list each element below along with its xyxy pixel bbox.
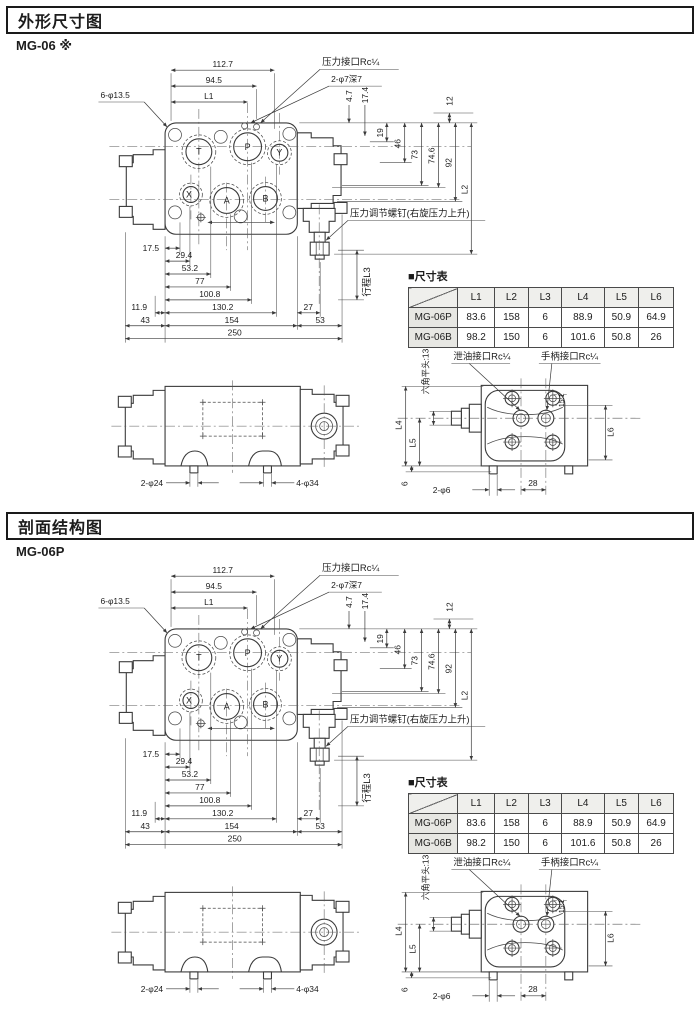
- section-header: 剖面结构图: [6, 512, 694, 540]
- dimension-table: ■尺寸表 L1 L2 L3 L4 L5 L6 MG-06P 83.6 158 6…: [408, 774, 674, 854]
- dim-154: 154: [225, 821, 239, 831]
- table-corner-cell: [409, 288, 458, 308]
- dim-2-d6: 2-φ6: [433, 991, 451, 1001]
- section-outline-dimensions: 外形尺寸图 MG-06 ※ T P Y X A B 112.7 94: [4, 6, 696, 506]
- col-L4: L4: [562, 288, 604, 308]
- dim-100-8: 100.8: [199, 289, 220, 299]
- cell: 158: [494, 814, 528, 834]
- label-pressure-port: 压力接口Rc¼: [322, 56, 379, 68]
- col-L3: L3: [529, 288, 562, 308]
- cell: 83.6: [458, 814, 494, 834]
- dim-6: 6: [400, 481, 410, 486]
- dim-stroke-L3: 行程L3: [361, 267, 373, 296]
- cell: 6: [529, 834, 562, 854]
- dim-L1: L1: [204, 597, 214, 607]
- cell: 50.9: [604, 814, 639, 834]
- dim-6: 6: [400, 987, 410, 992]
- cell: 150: [494, 834, 528, 854]
- dim-29-4: 29.4: [176, 250, 193, 260]
- section-header: 外形尺寸图: [6, 6, 694, 34]
- label-handle-port: 手柄接口Rc¼: [541, 351, 598, 363]
- cell: 101.6: [562, 328, 604, 348]
- col-L4: L4: [562, 794, 604, 814]
- label-adjust-screw: 压力调节螺钉(右旋压力上升): [350, 207, 470, 219]
- col-L6: L6: [639, 288, 674, 308]
- dim-stroke-L3: 行程L3: [361, 773, 373, 802]
- dim-28: 28: [528, 478, 538, 488]
- port-Y: Y: [276, 148, 282, 158]
- dim-53-2: 53.2: [182, 769, 199, 779]
- table-row: MG-06B 98.2 150 6 101.6 50.8 26: [409, 328, 674, 348]
- port-A: A: [224, 701, 230, 711]
- dim-12: 12: [444, 602, 454, 612]
- dim-43: 43: [140, 821, 150, 831]
- dim-19: 19: [375, 634, 385, 644]
- col-L2: L2: [494, 288, 528, 308]
- drawing-area-section: T P Y X A B 112.7 94.5 L1 6-φ13.5 压力接口Rc…: [4, 560, 696, 1012]
- dim-130-2: 130.2: [212, 302, 233, 312]
- table-row: MG-06B 98.2 150 6 101.6 50.8 26: [409, 834, 674, 854]
- port-T: T: [196, 147, 202, 157]
- port-B: B: [263, 193, 269, 203]
- dim-100-8: 100.8: [199, 795, 220, 805]
- dim-L5: L5: [408, 438, 418, 448]
- col-L2: L2: [494, 794, 528, 814]
- dim-19: 19: [375, 128, 385, 138]
- row-model: MG-06P: [409, 308, 458, 328]
- dim-43: 43: [140, 315, 150, 325]
- dim-112-7: 112.7: [212, 59, 233, 69]
- dim-L6: L6: [605, 933, 615, 943]
- dim-4-d34: 4-φ34: [296, 984, 319, 994]
- dim-28: 28: [528, 984, 538, 994]
- table-header-row: L1 L2 L3 L4 L5 L6: [409, 794, 674, 814]
- section-cross-section: 剖面结构图 MG-06P T P Y X A B 112.7 94.: [4, 512, 696, 1012]
- section-title: 剖面结构图: [18, 514, 103, 538]
- dim-4-d34: 4-φ34: [296, 478, 319, 488]
- cell: 64.9: [639, 814, 674, 834]
- port-X: X: [186, 189, 192, 199]
- table-header-row: L1 L2 L3 L4 L5 L6: [409, 288, 674, 308]
- dim-73: 73: [410, 656, 420, 666]
- dim-27: 27: [304, 302, 314, 312]
- dim-L6: L6: [605, 427, 615, 437]
- port-B: B: [263, 699, 269, 709]
- col-L3: L3: [529, 794, 562, 814]
- cell: 50.9: [604, 308, 639, 328]
- dim-46: 46: [393, 645, 403, 655]
- dim-L5: L5: [408, 944, 418, 954]
- dim-130-2: 130.2: [212, 808, 233, 818]
- model-code: MG-06P: [16, 544, 696, 560]
- side-view: 2-φ24 4-φ34: [111, 886, 360, 993]
- port-T: T: [196, 653, 202, 663]
- cell: 26: [639, 834, 674, 854]
- dim-11-9: 11.9: [131, 808, 147, 818]
- cell: 26: [639, 328, 674, 348]
- label-drain-port: 泄油接口Rc¼: [453, 857, 510, 869]
- dim-4-7: 4.7: [344, 596, 354, 608]
- cell: 98.2: [458, 328, 494, 348]
- drawing-area-outline: T P Y X A B 112.7 94.5 L1 6-φ13.5 压力接口Rc…: [4, 54, 696, 506]
- dim-L2: L2: [459, 691, 469, 701]
- dim-2-d24: 2-φ24: [141, 478, 164, 488]
- cell: 64.9: [639, 308, 674, 328]
- dim-112-7: 112.7: [212, 565, 233, 575]
- dim-94-5: 94.5: [206, 581, 223, 591]
- port-P: P: [245, 648, 251, 658]
- catalog-page: 外形尺寸图 MG-06 ※ T P Y X A B 112.7 94: [0, 0, 700, 1012]
- dim-17-5: 17.5: [143, 243, 160, 253]
- cell: 83.6: [458, 308, 494, 328]
- dim-L4: L4: [394, 926, 404, 936]
- section-title: 外形尺寸图: [18, 8, 103, 32]
- port-A: A: [224, 195, 230, 205]
- dim-53: 53: [315, 315, 325, 325]
- end-view: 泄油接口Rc¼ 手柄接口Rc¼ 六角平头:13 L4 L5 6 L6 15.1 …: [394, 854, 641, 1001]
- col-L6: L6: [639, 794, 674, 814]
- dim-2-d6: 2-φ6: [433, 485, 451, 495]
- cell: 6: [529, 814, 562, 834]
- label-holes-2x7: 2-φ7深7: [331, 580, 362, 590]
- port-X: X: [186, 695, 192, 705]
- dim-74-6: 74.6: [427, 653, 437, 670]
- row-model: MG-06P: [409, 814, 458, 834]
- cell: 50.8: [604, 834, 639, 854]
- dim-L2: L2: [459, 185, 469, 195]
- dim-11-9: 11.9: [131, 302, 147, 312]
- table-corner-cell: [409, 794, 458, 814]
- table-title: ■尺寸表: [408, 774, 674, 790]
- table-title: ■尺寸表: [408, 268, 674, 284]
- dim-92: 92: [443, 664, 453, 674]
- cell: 6: [529, 328, 562, 348]
- dim-53-2: 53.2: [182, 263, 199, 273]
- row-model: MG-06B: [409, 328, 458, 348]
- dim-27: 27: [304, 808, 314, 818]
- dim-77: 77: [195, 782, 205, 792]
- dim-92: 92: [443, 158, 453, 168]
- col-L5: L5: [604, 794, 639, 814]
- cell: 6: [529, 308, 562, 328]
- dim-94-5: 94.5: [206, 75, 223, 85]
- col-L5: L5: [604, 288, 639, 308]
- dimension-table: ■尺寸表 L1 L2 L3 L4 L5 L6 MG-06P 83.6 158 6…: [408, 268, 674, 348]
- label-pressure-port: 压力接口Rc¼: [322, 562, 379, 574]
- dim-4-7: 4.7: [344, 90, 354, 102]
- dim-L4: L4: [394, 420, 404, 430]
- port-P: P: [245, 142, 251, 152]
- label-adjust-screw: 压力调节螺钉(右旋压力上升): [350, 713, 470, 725]
- dim-154: 154: [225, 315, 239, 325]
- col-L1: L1: [458, 288, 494, 308]
- dim-74-6: 74.6: [427, 147, 437, 164]
- label-handle-port: 手柄接口Rc¼: [541, 857, 598, 869]
- cell: 150: [494, 328, 528, 348]
- row-model: MG-06B: [409, 834, 458, 854]
- dim-29-4: 29.4: [176, 756, 193, 766]
- table-row: MG-06P 83.6 158 6 88.9 50.9 64.9: [409, 308, 674, 328]
- label-mounting-bolts: 6-φ13.5: [100, 90, 130, 100]
- dim-46: 46: [393, 139, 403, 149]
- cell: 158: [494, 308, 528, 328]
- dim-L1: L1: [204, 91, 214, 101]
- dim-2-d24: 2-φ24: [141, 984, 164, 994]
- dim-250: 250: [228, 328, 242, 338]
- dim-53: 53: [315, 821, 325, 831]
- label-hex-flat: 六角平头:13: [421, 854, 431, 900]
- cell: 50.8: [604, 328, 639, 348]
- side-view: 2-φ24 4-φ34: [111, 380, 360, 487]
- port-Y: Y: [276, 654, 282, 664]
- end-view: 泄油接口Rc¼ 手柄接口Rc¼ 六角平头:13 L4 L5 6 L6 15.1 …: [394, 348, 641, 495]
- dim-15-1: 15.1: [559, 393, 566, 407]
- dim-15-1: 15.1: [559, 899, 566, 913]
- table-row: MG-06P 83.6 158 6 88.9 50.9 64.9: [409, 814, 674, 834]
- dim-250: 250: [228, 834, 242, 844]
- dim-77: 77: [195, 276, 205, 286]
- model-code: MG-06 ※: [16, 38, 696, 54]
- col-L1: L1: [458, 794, 494, 814]
- label-hex-flat: 六角平头:13: [421, 348, 431, 394]
- dim-17-5: 17.5: [143, 749, 160, 759]
- dim-12: 12: [444, 96, 454, 106]
- cell: 101.6: [562, 834, 604, 854]
- label-holes-2x7: 2-φ7深7: [331, 74, 362, 84]
- dim-17-4: 17.4: [360, 87, 370, 104]
- dim-73: 73: [410, 150, 420, 160]
- label-drain-port: 泄油接口Rc¼: [453, 351, 510, 363]
- label-mounting-bolts: 6-φ13.5: [100, 596, 130, 606]
- cell: 98.2: [458, 834, 494, 854]
- dim-17-4: 17.4: [360, 593, 370, 610]
- cell: 88.9: [562, 308, 604, 328]
- cell: 88.9: [562, 814, 604, 834]
